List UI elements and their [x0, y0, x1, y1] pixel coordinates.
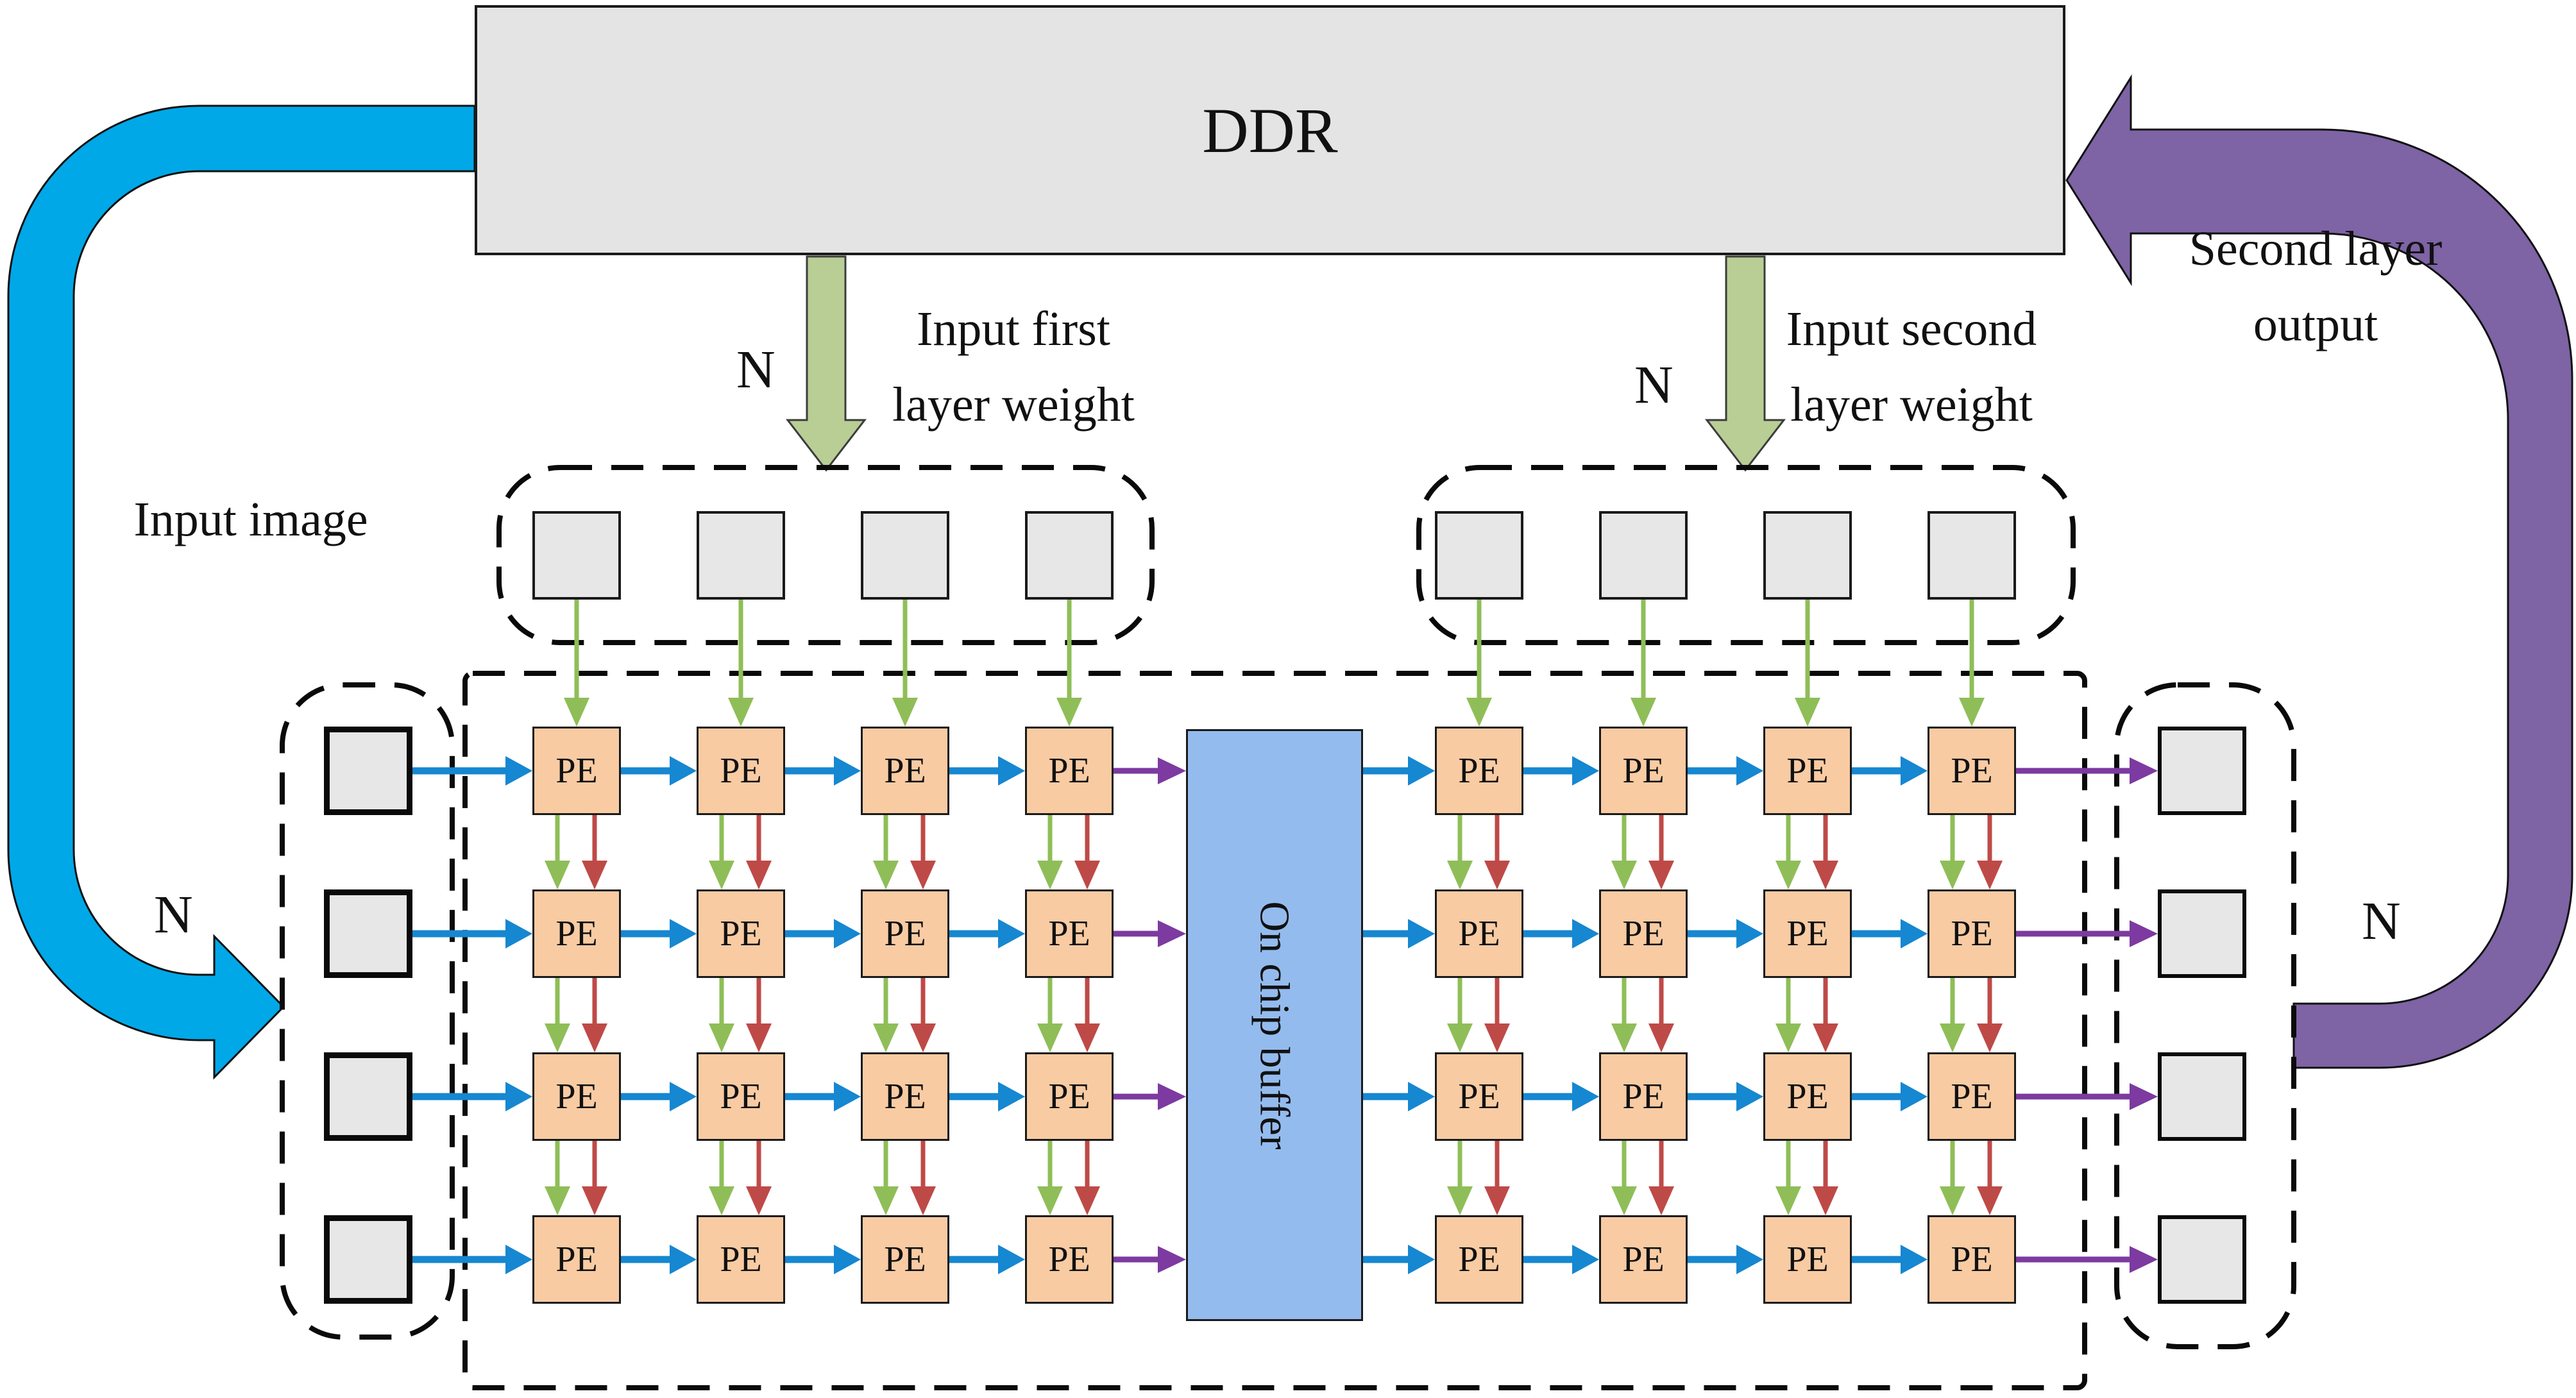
blue-data-arrow [785, 919, 861, 948]
blue-data-arrow [1363, 919, 1435, 948]
pe-box-label: PE [884, 913, 926, 954]
red-inter-pe-arrow [910, 1141, 936, 1215]
pe-box: PE [1599, 1215, 1688, 1304]
pe-box: PE [1435, 1215, 1523, 1304]
blue-data-arrow [1523, 1082, 1599, 1111]
blue-data-arrow [1363, 1082, 1435, 1111]
blue-data-arrow [1852, 1245, 1928, 1274]
pe-box-label: PE [1458, 1239, 1500, 1280]
weight-down-arrow [1056, 600, 1082, 727]
pe-box: PE [1025, 889, 1114, 978]
pe-box: PE [697, 727, 785, 815]
blue-data-arrow [1523, 919, 1599, 948]
weight-buffer-square [1025, 511, 1114, 600]
ddr-label: DDR [1202, 94, 1337, 167]
green-inter-pe-arrow [1775, 1141, 1801, 1215]
green-inter-pe-arrow [873, 815, 899, 889]
blue-data-arrow [785, 1245, 861, 1274]
output-buffer-square [2158, 1215, 2246, 1304]
blue-data-arrow [1688, 756, 1763, 786]
green-inter-pe-arrow [545, 978, 570, 1052]
pe-box-label: PE [1786, 1076, 1828, 1117]
purple-to-buffer-arrow [1114, 1246, 1186, 1273]
red-inter-pe-arrow [1648, 815, 1674, 889]
weight-buffer-square [1763, 511, 1852, 600]
weight-buffer-square [1435, 511, 1523, 600]
pe-box: PE [697, 1052, 785, 1141]
red-inter-pe-arrow [1648, 1141, 1674, 1215]
pe-box-label: PE [1622, 913, 1664, 954]
pe-box: PE [1025, 1052, 1114, 1141]
red-inter-pe-arrow [1484, 978, 1510, 1052]
pe-box-label: PE [720, 913, 761, 954]
pe-box-label: PE [555, 1239, 597, 1280]
on-chip-buffer-label: On chip buffer [1250, 901, 1299, 1149]
green-inter-pe-arrow [545, 1141, 570, 1215]
green-inter-pe-arrow [709, 815, 734, 889]
pe-box-label: PE [1951, 750, 1992, 791]
blue-data-arrow [1852, 919, 1928, 948]
output-buffer-square [2158, 889, 2246, 978]
blue-data-arrow [621, 1082, 697, 1111]
pe-box: PE [1928, 727, 2016, 815]
n-label-second-weight: N [1634, 354, 1674, 416]
pe-box: PE [1599, 1052, 1688, 1141]
weight-down-arrow [1959, 600, 1985, 727]
pe-box: PE [532, 889, 621, 978]
blue-data-arrow [1363, 756, 1435, 786]
pe-box-label: PE [1951, 913, 1992, 954]
accelerator-dataflow-diagram: DDR On chip buffer PEPEPEPEPEPEPEPEPEPEP… [0, 0, 2576, 1398]
pe-box: PE [1763, 1215, 1852, 1304]
ddr-box: DDR [475, 5, 2065, 255]
pe-box: PE [861, 1215, 949, 1304]
red-inter-pe-arrow [582, 1141, 607, 1215]
green-inter-pe-arrow [1775, 815, 1801, 889]
pe-box-label: PE [1951, 1076, 1992, 1117]
red-inter-pe-arrow [1813, 978, 1838, 1052]
red-inter-pe-arrow [910, 815, 936, 889]
blue-data-arrow [1363, 1245, 1435, 1274]
pe-box: PE [1435, 727, 1523, 815]
blue-data-arrow [621, 919, 697, 948]
pe-box: PE [1763, 727, 1852, 815]
pe-box-label: PE [884, 750, 926, 791]
weight-down-arrow [728, 600, 754, 727]
blue-data-arrow [412, 756, 532, 786]
blue-data-arrow [621, 1245, 697, 1274]
pe-box: PE [861, 727, 949, 815]
red-inter-pe-arrow [582, 978, 607, 1052]
red-inter-pe-arrow [1977, 978, 2003, 1052]
pe-box-label: PE [1458, 750, 1500, 791]
second-layer-output-label: Second layer output [2136, 212, 2495, 363]
purple-to-buffer-arrow [1114, 920, 1186, 947]
pe-box-label: PE [884, 1076, 926, 1117]
red-inter-pe-arrow [1074, 978, 1100, 1052]
pe-box: PE [1025, 727, 1114, 815]
blue-data-arrow [1852, 756, 1928, 786]
red-inter-pe-arrow [1648, 978, 1674, 1052]
weight-buffer-square [861, 511, 949, 600]
input-buffer-square [324, 889, 412, 978]
red-inter-pe-arrow [1484, 815, 1510, 889]
blue-data-arrow [785, 1082, 861, 1111]
pe-box: PE [861, 889, 949, 978]
weight-buffer-square [697, 511, 785, 600]
red-inter-pe-arrow [1977, 815, 2003, 889]
pe-box: PE [532, 1052, 621, 1141]
green-inter-pe-arrow [1447, 815, 1473, 889]
pe-box: PE [697, 889, 785, 978]
pe-box-label: PE [555, 1076, 597, 1117]
pe-box: PE [1599, 727, 1688, 815]
n-label-output: N [2362, 890, 2401, 952]
pe-box-label: PE [555, 750, 597, 791]
purple-to-buffer-arrow [1114, 757, 1186, 784]
green-inter-pe-arrow [873, 1141, 899, 1215]
pe-box-label: PE [1786, 750, 1828, 791]
blue-data-arrow [949, 919, 1025, 948]
red-inter-pe-arrow [1977, 1141, 2003, 1215]
pe-box-label: PE [1786, 913, 1828, 954]
red-inter-pe-arrow [746, 1141, 772, 1215]
green-inter-pe-arrow [1940, 978, 1965, 1052]
input-first-layer-weight-label: Input first layer weight [821, 292, 1206, 443]
input-second-layer-weight-label: Input second layer weight [1719, 292, 2104, 443]
pe-box-label: PE [1458, 913, 1500, 954]
green-inter-pe-arrow [1037, 815, 1063, 889]
pe-box: PE [532, 727, 621, 815]
pe-box: PE [532, 1215, 621, 1304]
weight-buffer-square [1599, 511, 1688, 600]
pe-box-label: PE [1786, 1239, 1828, 1280]
red-inter-pe-arrow [746, 815, 772, 889]
green-inter-pe-arrow [1775, 978, 1801, 1052]
blue-data-arrow [1688, 1082, 1763, 1111]
pe-box-label: PE [1048, 913, 1090, 954]
pe-box-label: PE [555, 913, 597, 954]
pe-box: PE [1025, 1215, 1114, 1304]
weight-down-arrow [564, 600, 589, 727]
red-inter-pe-arrow [1484, 1141, 1510, 1215]
pe-box-label: PE [1458, 1076, 1500, 1117]
blue-data-arrow [1523, 756, 1599, 786]
blue-data-arrow [785, 756, 861, 786]
red-inter-pe-arrow [582, 815, 607, 889]
red-inter-pe-arrow [1074, 1141, 1100, 1215]
red-inter-pe-arrow [1074, 815, 1100, 889]
pe-box-label: PE [1622, 750, 1664, 791]
blue-data-arrow [412, 1245, 532, 1274]
blue-data-arrow [1523, 1245, 1599, 1274]
pe-box: PE [697, 1215, 785, 1304]
pe-box-label: PE [1048, 1239, 1090, 1280]
blue-data-arrow [1852, 1082, 1928, 1111]
pe-box: PE [861, 1052, 949, 1141]
pe-box-label: PE [720, 750, 761, 791]
green-inter-pe-arrow [1447, 1141, 1473, 1215]
red-inter-pe-arrow [746, 978, 772, 1052]
pe-box: PE [1928, 1052, 2016, 1141]
green-inter-pe-arrow [1940, 815, 1965, 889]
blue-data-arrow [412, 919, 532, 948]
input-buffer-square [324, 727, 412, 815]
pe-box-label: PE [1622, 1239, 1664, 1280]
green-inter-pe-arrow [709, 978, 734, 1052]
pe-box-label: PE [1951, 1239, 1992, 1280]
red-inter-pe-arrow [1813, 815, 1838, 889]
weight-down-arrow [1795, 600, 1820, 727]
output-buffer-square [2158, 1052, 2246, 1141]
input-buffer-square [324, 1215, 412, 1304]
blue-data-arrow [949, 1245, 1025, 1274]
output-buffer-square [2158, 727, 2246, 815]
pe-box: PE [1435, 1052, 1523, 1141]
pe-box-label: PE [1048, 1076, 1090, 1117]
green-inter-pe-arrow [1447, 978, 1473, 1052]
input-image-label: Input image [90, 482, 411, 558]
red-inter-pe-arrow [1813, 1141, 1838, 1215]
pe-box-label: PE [1622, 1076, 1664, 1117]
blue-data-arrow [412, 1082, 532, 1111]
green-inter-pe-arrow [1037, 1141, 1063, 1215]
blue-data-arrow [1688, 1245, 1763, 1274]
weight-down-arrow [1631, 600, 1656, 727]
pe-box: PE [1928, 1215, 2016, 1304]
weight-buffer-square [532, 511, 621, 600]
n-label-first-weight: N [736, 339, 775, 401]
green-inter-pe-arrow [873, 978, 899, 1052]
blue-data-arrow [949, 756, 1025, 786]
on-chip-buffer-box: On chip buffer [1186, 729, 1363, 1321]
weight-down-arrow [1466, 600, 1492, 727]
green-inter-pe-arrow [1611, 815, 1637, 889]
pe-box-label: PE [720, 1239, 761, 1280]
blue-data-arrow [1688, 919, 1763, 948]
pe-box: PE [1435, 889, 1523, 978]
green-inter-pe-arrow [709, 1141, 734, 1215]
purple-to-buffer-arrow [1114, 1083, 1186, 1110]
input-buffer-square [324, 1052, 412, 1141]
pe-box: PE [1763, 889, 1852, 978]
n-label-input: N [154, 884, 193, 946]
green-inter-pe-arrow [1611, 978, 1637, 1052]
pe-box-label: PE [720, 1076, 761, 1117]
weight-down-arrow [892, 600, 918, 727]
pe-box-label: PE [1048, 750, 1090, 791]
pe-box: PE [1928, 889, 2016, 978]
weight-buffer-square [1928, 511, 2016, 600]
pe-box: PE [1599, 889, 1688, 978]
green-inter-pe-arrow [1940, 1141, 1965, 1215]
green-inter-pe-arrow [1037, 978, 1063, 1052]
green-inter-pe-arrow [1611, 1141, 1637, 1215]
pe-box-label: PE [884, 1239, 926, 1280]
blue-data-arrow [949, 1082, 1025, 1111]
pe-box: PE [1763, 1052, 1852, 1141]
red-inter-pe-arrow [910, 978, 936, 1052]
green-inter-pe-arrow [545, 815, 570, 889]
blue-data-arrow [621, 756, 697, 786]
